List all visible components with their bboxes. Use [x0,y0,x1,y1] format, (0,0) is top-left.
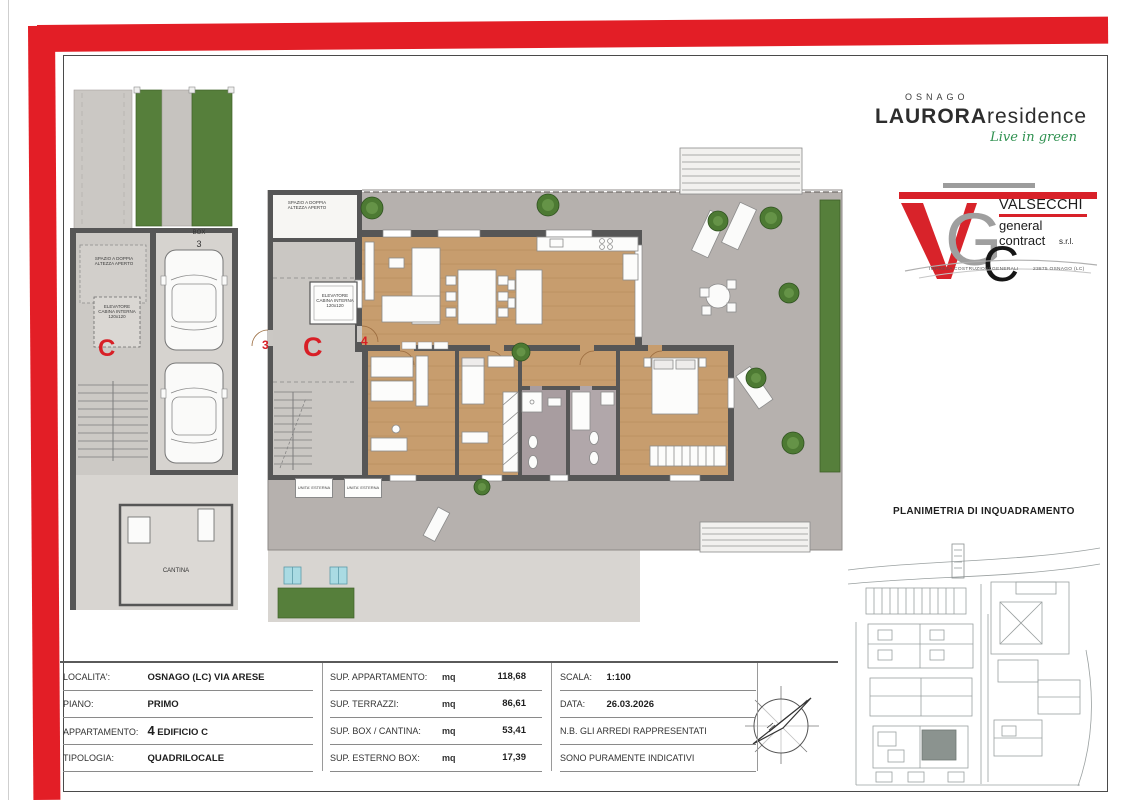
apartment-plan-drawing [250,130,850,630]
row-appartamento-value: EDIFICIO C [157,727,208,738]
row-sup-box-cantina: SUP. BOX / CANTINA: mq 53,41 [330,720,542,745]
row-piano-value: PRIMO [148,699,179,710]
row-piano: PIANO: PRIMO [63,693,313,718]
door-number-3: 3 [262,339,269,353]
table-divider-1 [322,663,323,771]
row-sup-terrazzi-label: SUP. TERRAZZI: [330,693,442,717]
contractor-suffix: s.r.l. [1059,237,1074,246]
row-sup-esterno-box-value: 17,39 [472,747,526,771]
core-letter-left: C [98,335,115,363]
table-divider-2 [551,663,552,771]
row-sup-box-cantina-label: SUP. BOX / CANTINA: [330,720,442,744]
brand-city: OSNAGO [905,92,1091,102]
row-appartamento-label: APPARTAMENTO: [63,721,145,743]
row-scala-value: 1:100 [607,672,631,683]
elevator-label-left: ELEVATORE CABINA INTERNA 120x120 [97,304,137,320]
row-sup-appartamento-label: SUP. APPARTAMENTO: [330,666,442,690]
garage-plan-drawing [58,85,248,615]
brand-tagline: Live in green [875,130,1091,145]
core-letter-main: C [303,332,323,363]
box-label: BOX [180,230,218,237]
row-sup-esterno-box-label: SUP. ESTERNO BOX: [330,747,442,771]
row-data-label: DATA: [560,693,604,715]
row-piano-label: PIANO: [63,693,145,715]
row-appartamento-number: 4 [148,723,155,738]
red-frame-top [37,17,1108,52]
inset-title: PLANIMETRIA DI INQUADRAMENTO [893,506,1075,517]
row-localita-value: OSNAGO (LC) VIA ARESE [148,672,265,683]
exterior-unit-2: UNITA' ESTERNA [344,478,382,498]
table-top-rule [60,661,838,663]
contractor-name: VALSECCHI [999,197,1083,213]
row-note-1: N.B. GLI ARREDI RAPPRESENTATI [560,720,756,745]
elevator-label-main: ELEVATORE CABINA INTERNA 120x120 [314,293,356,309]
door-number-4: 4 [361,335,368,349]
row-sup-appartamento: SUP. APPARTAMENTO: mq 118,68 [330,666,542,691]
row-sup-appartamento-unit: mq [442,666,472,690]
garage-outdoor [74,87,234,230]
brand-name: LAURORAresidence [875,105,1091,129]
contractor-footer-right: 23875 OSNAGO (LC) [1033,267,1085,272]
contractor-logo: G C VALSECCHI general contract s.r.l. IM… [893,183,1105,285]
cantina-label: CANTINA [150,568,202,575]
exterior-unit-1: UNITA' ESTERNA [295,478,333,498]
row-sup-appartamento-value: 118,68 [472,666,526,690]
site-plan-drawing [848,532,1100,790]
row-appartamento: APPARTAMENTO: 4 EDIFICIO C [63,720,313,745]
row-scala: SCALA: 1:100 [560,666,756,691]
scan-edge [8,0,9,800]
brand-name-bold: LAURORA [875,105,987,128]
hedge-right [820,200,840,472]
red-frame-left [28,26,60,800]
contractor-line2: general [999,218,1042,233]
box-number: 3 [180,239,218,249]
row-sup-box-cantina-value: 53,41 [472,720,526,744]
row-data: DATA: 26.03.2026 [560,693,756,718]
contractor-footer-left: IMPRESA COSTRUZIONI GENERALI [929,267,1019,272]
plan-sheet: BOX 3 SPAZIO A DOPPIA ALTEZZA APERTO ELE… [0,0,1130,800]
row-sup-esterno-box: SUP. ESTERNO BOX: mq 17,39 [330,747,542,772]
row-sup-terrazzi: SUP. TERRAZZI: mq 86,61 [330,693,542,718]
cantina-room [120,505,232,605]
row-sup-terrazzi-unit: mq [442,693,472,717]
row-sup-terrazzi-value: 86,61 [472,693,526,717]
brand-name-suffix: residence [987,105,1087,128]
row-tipologia-value: QUADRILOCALE [148,753,225,764]
row-tipologia: TIPOLOGIA: QUADRILOCALE [63,747,313,772]
contractor-rule [999,214,1087,217]
row-sup-esterno-box-unit: mq [442,747,472,771]
row-data-value: 26.03.2026 [607,699,655,710]
contractor-line3: contract [999,233,1045,248]
row-localita-label: LOCALITA': [63,666,145,688]
row-localita: LOCALITA': OSNAGO (LC) VIA ARESE [63,666,313,691]
table-divider-3 [757,663,758,771]
void-label-main: SPAZIO A DOPPIA ALTEZZA APERTO [281,200,333,210]
row-sup-box-cantina-unit: mq [442,720,472,744]
row-tipologia-label: TIPOLOGIA: [63,747,145,769]
row-note-2: SONO PURAMENTE INDICATIVI [560,747,756,772]
row-scala-label: SCALA: [560,666,604,688]
void-label-left: SPAZIO A DOPPIA ALTEZZA APERTO [92,256,136,266]
brand-block: OSNAGO LAURORAresidence Live in green [875,92,1091,145]
